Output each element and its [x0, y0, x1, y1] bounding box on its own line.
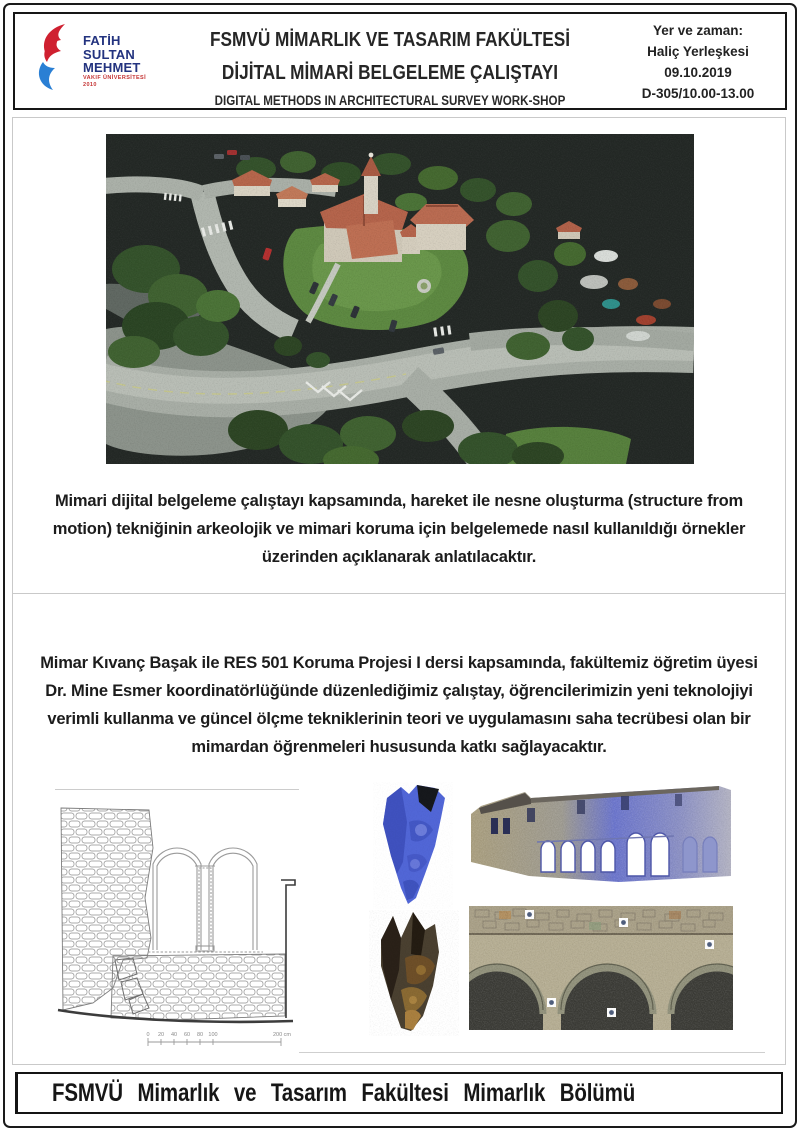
facade-point-cloud-image: [469, 784, 733, 902]
date: 09.10.2019: [619, 65, 777, 80]
logo-subtitle: VAKIF ÜNİVERSİTESİ: [83, 75, 146, 82]
title-workshop-tr: DİJİTAL MİMARİ BELGELEME ÇALIŞTAYI: [201, 61, 579, 85]
footer-bar: FSMVÜ Mimarlık ve Tasarım Fakültesi Mima…: [15, 1072, 783, 1114]
section-bottom: Mimar Kıvanç Başak ile RES 501 Koruma Pr…: [12, 594, 786, 1065]
intro-paragraph: Mimari dijital belgeleme çalıştayı kapsa…: [28, 487, 770, 571]
logo-line: SULTAN: [83, 48, 146, 62]
fsmvu-logo-icon: [31, 22, 83, 94]
svg-text:60: 60: [184, 1032, 190, 1038]
logo-line: MEHMET: [83, 61, 146, 75]
header: FATİH SULTAN MEHMET VAKIF ÜNİVERSİTESİ 2…: [13, 12, 787, 110]
university-logo: FATİH SULTAN MEHMET VAKIF ÜNİVERSİTESİ 2…: [31, 22, 181, 100]
logo-text: FATİH SULTAN MEHMET VAKIF ÜNİVERSİTESİ 2…: [83, 34, 146, 89]
arcade-point-cloud-image: [469, 906, 733, 1030]
stone-wall-drawing: 0 20 40 60 80 100 200 cm: [53, 788, 301, 1056]
svg-text:100: 100: [208, 1032, 217, 1038]
section-top: Mimari dijital belgeleme çalıştayı kapsa…: [12, 117, 786, 594]
survey-images-grid: [357, 782, 771, 1054]
title-workshop-en: DIGITAL METHODS IN ARCHITECTURAL SURVEY …: [197, 93, 584, 108]
place-time-label: Yer ve zaman:: [619, 23, 777, 38]
workshop-poster: FATİH SULTAN MEHMET VAKIF ÜNİVERSİTESİ 2…: [0, 0, 800, 1131]
svg-text:40: 40: [171, 1032, 177, 1038]
details-paragraph: Mimar Kıvanç Başak ile RES 501 Koruma Pr…: [28, 649, 770, 761]
header-titles: FSMVÜ MİMARLIK VE TASARIM FAKÜLTESİ DİJİ…: [165, 14, 615, 108]
svg-text:80: 80: [197, 1032, 203, 1038]
logo-year: 2010: [83, 82, 146, 89]
svg-text:20: 20: [158, 1032, 164, 1038]
svg-text:200 cm: 200 cm: [273, 1032, 291, 1038]
blue-mesh-capital-image: [373, 782, 453, 909]
image-block-divider: [299, 1052, 765, 1053]
logo-line: FATİH: [83, 34, 146, 48]
textured-capital-image: [369, 910, 459, 1036]
footer-text: FSMVÜ Mimarlık ve Tasarım Fakültesi Mima…: [52, 1079, 635, 1108]
place-time-block: Yer ve zaman: Haliç Yerleşkesi 09.10.201…: [619, 14, 777, 108]
room-time: D-305/10.00-13.00: [619, 86, 777, 101]
svg-text:0: 0: [146, 1032, 149, 1038]
title-faculty: FSMVÜ MİMARLIK VE TASARIM FAKÜLTESİ: [201, 28, 579, 52]
venue: Haliç Yerleşkesi: [619, 44, 777, 59]
aerial-point-cloud-image: [106, 134, 694, 464]
